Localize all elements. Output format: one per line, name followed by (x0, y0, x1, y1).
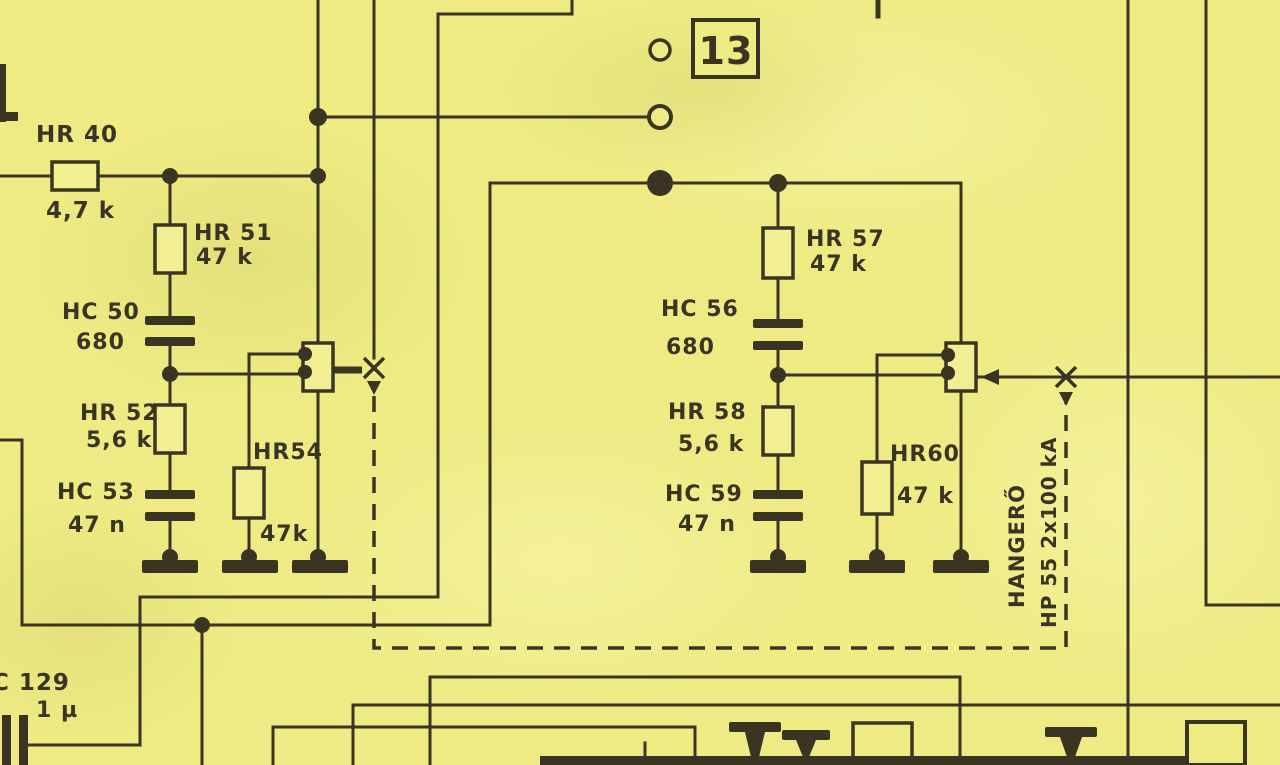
resistor-hr40 (52, 162, 98, 190)
terminal-13-label: 13 (699, 29, 754, 73)
label-pot-name: HANGERŐ (1004, 484, 1029, 608)
resistor-hr60 (862, 462, 892, 514)
schematic-page: 13 (0, 0, 1280, 765)
label-hr51-ref: HR 51 (194, 221, 273, 246)
label-hr40-ref: HR 40 (36, 122, 118, 148)
label-hc59-value: 47 n (678, 512, 736, 537)
junction-dot (162, 366, 178, 382)
label-hr52-ref: HR 52 (80, 401, 159, 426)
pot-right-contact-bottom (941, 366, 955, 380)
label-hr40-value: 4,7 k (46, 198, 115, 224)
junction-dot (162, 168, 178, 184)
label-c129-value: 1 µ (36, 698, 78, 723)
label-hr58-ref: HR 58 (668, 400, 747, 425)
pot-left-contact-bottom (298, 365, 312, 379)
label-hc50-value: 680 (76, 330, 125, 355)
label-hc53-ref: HC 53 (57, 480, 135, 505)
schematic-drawing: 13 (0, 0, 1280, 765)
terminal-circle-wire (649, 106, 671, 128)
junction-dot (194, 617, 210, 633)
label-hc50-ref: HC 50 (62, 300, 140, 325)
pot-right-contact-top (941, 348, 955, 362)
junction-dot (647, 170, 673, 196)
label-hr54-value: 47k (260, 522, 309, 547)
label-c129-ref: C 129 (0, 670, 70, 696)
resistor-hr51 (155, 225, 185, 273)
junction-dot (770, 367, 786, 383)
resistor-hr58 (763, 407, 793, 455)
label-hr51-value: 47 k (196, 245, 253, 270)
paper-background (0, 0, 1280, 765)
label-hc56-ref: HC 56 (661, 297, 739, 322)
junction-dot (769, 174, 787, 192)
label-hc53-value: 47 n (68, 513, 126, 538)
junction-dot (310, 168, 326, 184)
terminal-circle-small (650, 40, 670, 60)
label-hr52-value: 5,6 k (86, 428, 153, 453)
label-hc59-ref: HC 59 (665, 482, 743, 507)
label-pot-type: HP 55 2x100 kA (1037, 437, 1061, 628)
label-hr60-ref: HR60 (890, 442, 960, 467)
resistor-hr57 (763, 228, 793, 278)
junction-dot (309, 108, 327, 126)
label-hc56-value: 680 (666, 335, 715, 360)
label-hr57-value: 47 k (810, 252, 867, 277)
label-hr54-ref: HR54 (253, 440, 323, 465)
pot-left-contact-top (298, 347, 312, 361)
label-hr57-ref: HR 57 (806, 227, 885, 252)
label-hr60-value: 47 k (897, 484, 954, 509)
label-hr58-value: 5,6 k (678, 432, 745, 457)
resistor-hr52 (155, 405, 185, 453)
resistor-hr54 (234, 468, 264, 518)
